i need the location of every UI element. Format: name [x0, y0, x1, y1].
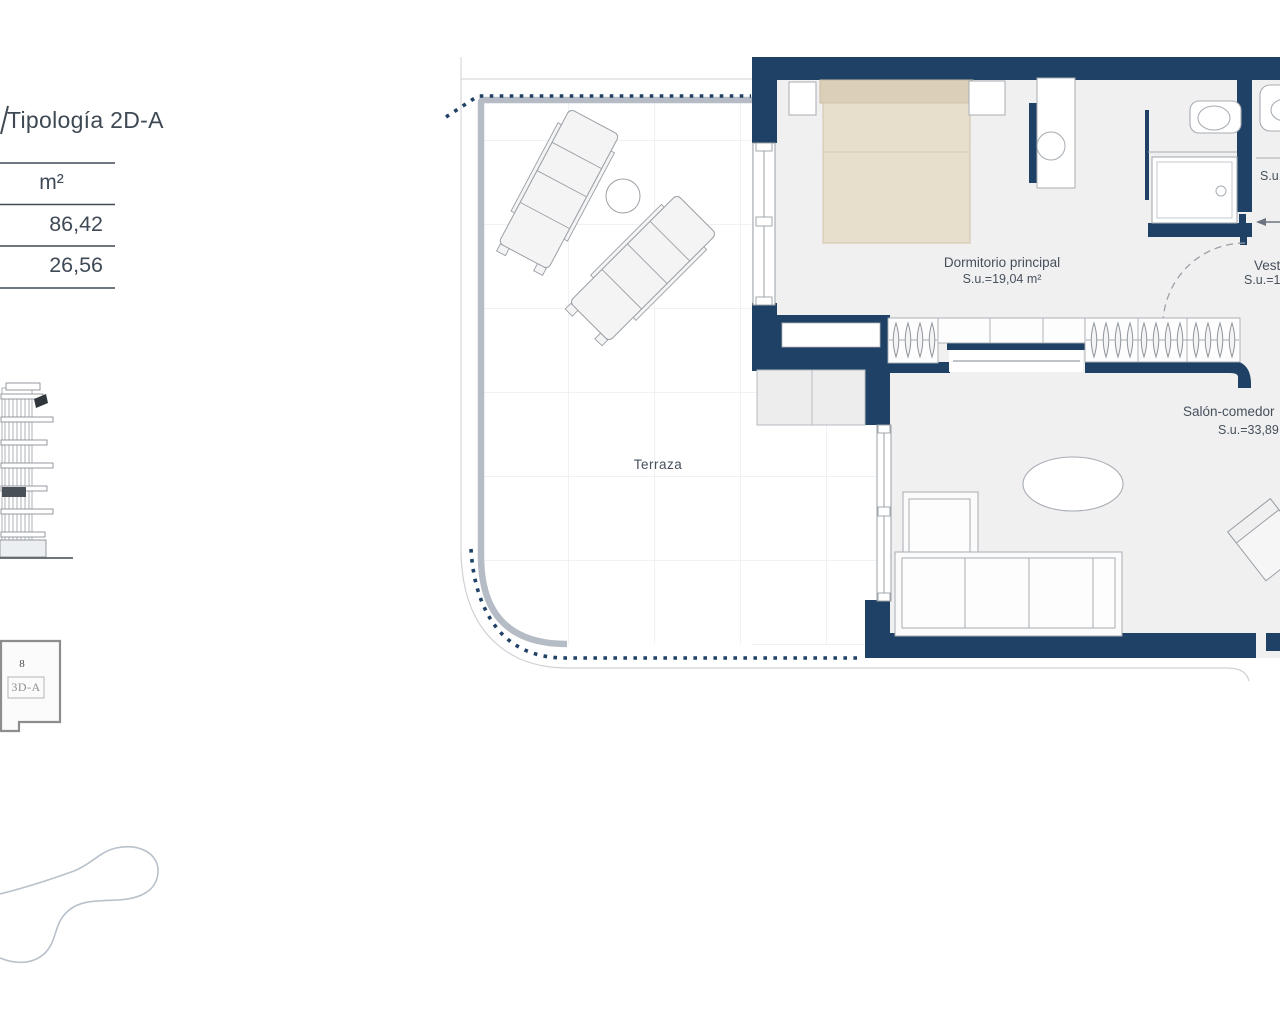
coffee-table — [1023, 457, 1123, 511]
area-value-built: 86,42 — [0, 212, 103, 237]
vanity-desk — [1037, 78, 1075, 188]
bedroom-window — [753, 143, 775, 305]
nightstand-left — [789, 82, 816, 115]
bedroom-area-label: S.u.=19,04 m² — [902, 272, 1102, 286]
area-table-header: m² — [0, 171, 103, 195]
typology-title: Tipología 2D-A — [7, 107, 164, 134]
wall-niche-bedroom — [782, 323, 880, 347]
area-value-terrace: 26,56 — [0, 253, 103, 278]
floorplan-canvas — [0, 0, 1280, 1024]
toilet — [1190, 101, 1241, 133]
side-table — [606, 179, 640, 213]
wall-niche-living — [949, 350, 1083, 372]
shower — [1148, 152, 1237, 223]
nightstand-right — [969, 81, 1005, 115]
terrace-storage — [757, 370, 865, 425]
bedroom-name-label: Dormitorio principal — [902, 255, 1102, 270]
vestidor-area-label: S.u.=1 — [1244, 273, 1280, 287]
living-name-label: Salón-comedor — [1183, 404, 1275, 419]
living-glass-door — [877, 425, 891, 601]
key-plan-floor-label: 8 — [13, 658, 31, 670]
terrace-name-label: Terraza — [608, 457, 708, 472]
vestidor-name-label: Vestidor — [1254, 258, 1280, 273]
living-area-label: S.u.=33,89 m² — [1218, 423, 1280, 437]
building-elevation — [0, 383, 73, 558]
key-plan-unit-label: 3D-A — [8, 680, 44, 695]
bath-area-label-partial: S.u.= — [1260, 169, 1280, 183]
bed — [820, 80, 973, 243]
pool-outline — [0, 847, 158, 963]
